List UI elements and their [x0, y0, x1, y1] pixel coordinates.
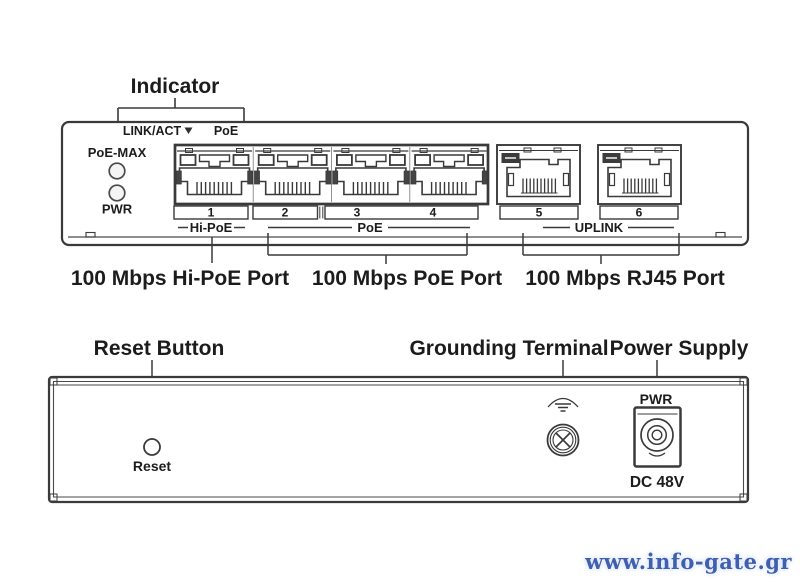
rear-panel-section: Reset Button Grounding Terminal Power Su…	[49, 337, 749, 502]
reset-button	[144, 439, 160, 455]
caption-poe-port: 100 Mbps PoE Port	[312, 267, 502, 290]
poe-led-label: PoE	[214, 124, 238, 138]
port-number-2: 2	[282, 206, 289, 220]
pwr-led	[109, 185, 125, 201]
dc-48v-label: DC 48V	[630, 474, 685, 491]
pwr-label: PWR	[640, 391, 673, 407]
switch-diagram: Indicator LINK/ACT PoE PoE-MAX PWR	[0, 0, 800, 583]
poe-max-led	[109, 163, 125, 179]
port-number-3: 3	[354, 206, 361, 220]
reset-callout-label: Reset Button	[94, 337, 225, 360]
group-label-poe: PoE	[357, 220, 383, 235]
reset-label: Reset	[133, 458, 171, 474]
port-number-4: 4	[430, 206, 437, 220]
pwr-led-label: PWR	[102, 202, 133, 217]
caption-rj45-port: 100 Mbps RJ45 Port	[525, 267, 725, 290]
port-number-1: 1	[208, 206, 215, 220]
front-panel-section: Indicator LINK/ACT PoE PoE-MAX PWR	[62, 75, 748, 290]
watermark: www.info-gate.gr	[585, 549, 792, 574]
grounding-callout-label: Grounding Terminal	[409, 337, 608, 360]
power-callout-label: Power Supply	[610, 337, 749, 360]
indicator-callout-label: Indicator	[131, 75, 220, 98]
port-number-5: 5	[536, 206, 543, 220]
link-act-label: LINK/ACT	[123, 124, 182, 138]
port-number-6: 6	[636, 206, 643, 220]
dc-jack-icon	[635, 408, 681, 467]
group-label-hi-poe: Hi-PoE	[190, 220, 233, 235]
group-label-uplink: UPLINK	[575, 220, 624, 235]
caption-hi-poe-port: 100 Mbps Hi-PoE Port	[71, 267, 289, 290]
diagram-svg: Indicator LINK/ACT PoE PoE-MAX PWR	[0, 0, 800, 583]
poe-max-label: PoE-MAX	[88, 145, 147, 160]
